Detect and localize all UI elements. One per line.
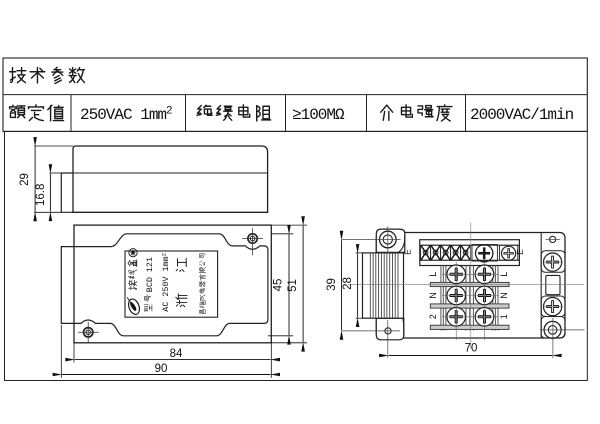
svg-text:L: L [499,272,509,277]
svg-text:90: 90 [155,363,168,375]
svg-text:2000VAC/1min: 2000VAC/1min [470,106,574,124]
svg-text:N: N [499,292,509,299]
svg-text:45: 45 [273,279,285,292]
svg-text:1: 1 [499,314,509,319]
svg-text:39: 39 [326,278,338,291]
svg-text:BCD 121: BCD 121 [145,257,155,292]
svg-text:250VAC 1mm2: 250VAC 1mm2 [80,106,172,125]
svg-text:70: 70 [465,342,478,354]
svg-text:2: 2 [428,314,438,319]
svg-text:L: L [428,272,438,277]
svg-text:84: 84 [170,348,183,360]
svg-text:E: E [402,249,412,255]
svg-text:N: N [428,292,438,299]
svg-text:≥100MΩ: ≥100MΩ [292,106,345,124]
svg-text:51: 51 [287,279,299,292]
svg-text:29: 29 [19,173,31,186]
svg-text:E: E [515,249,525,255]
svg-text:16.8: 16.8 [35,184,47,206]
svg-text:AC 250V 1mm2: AC 250V 1mm2 [160,252,171,311]
svg-text:28: 28 [342,277,354,290]
